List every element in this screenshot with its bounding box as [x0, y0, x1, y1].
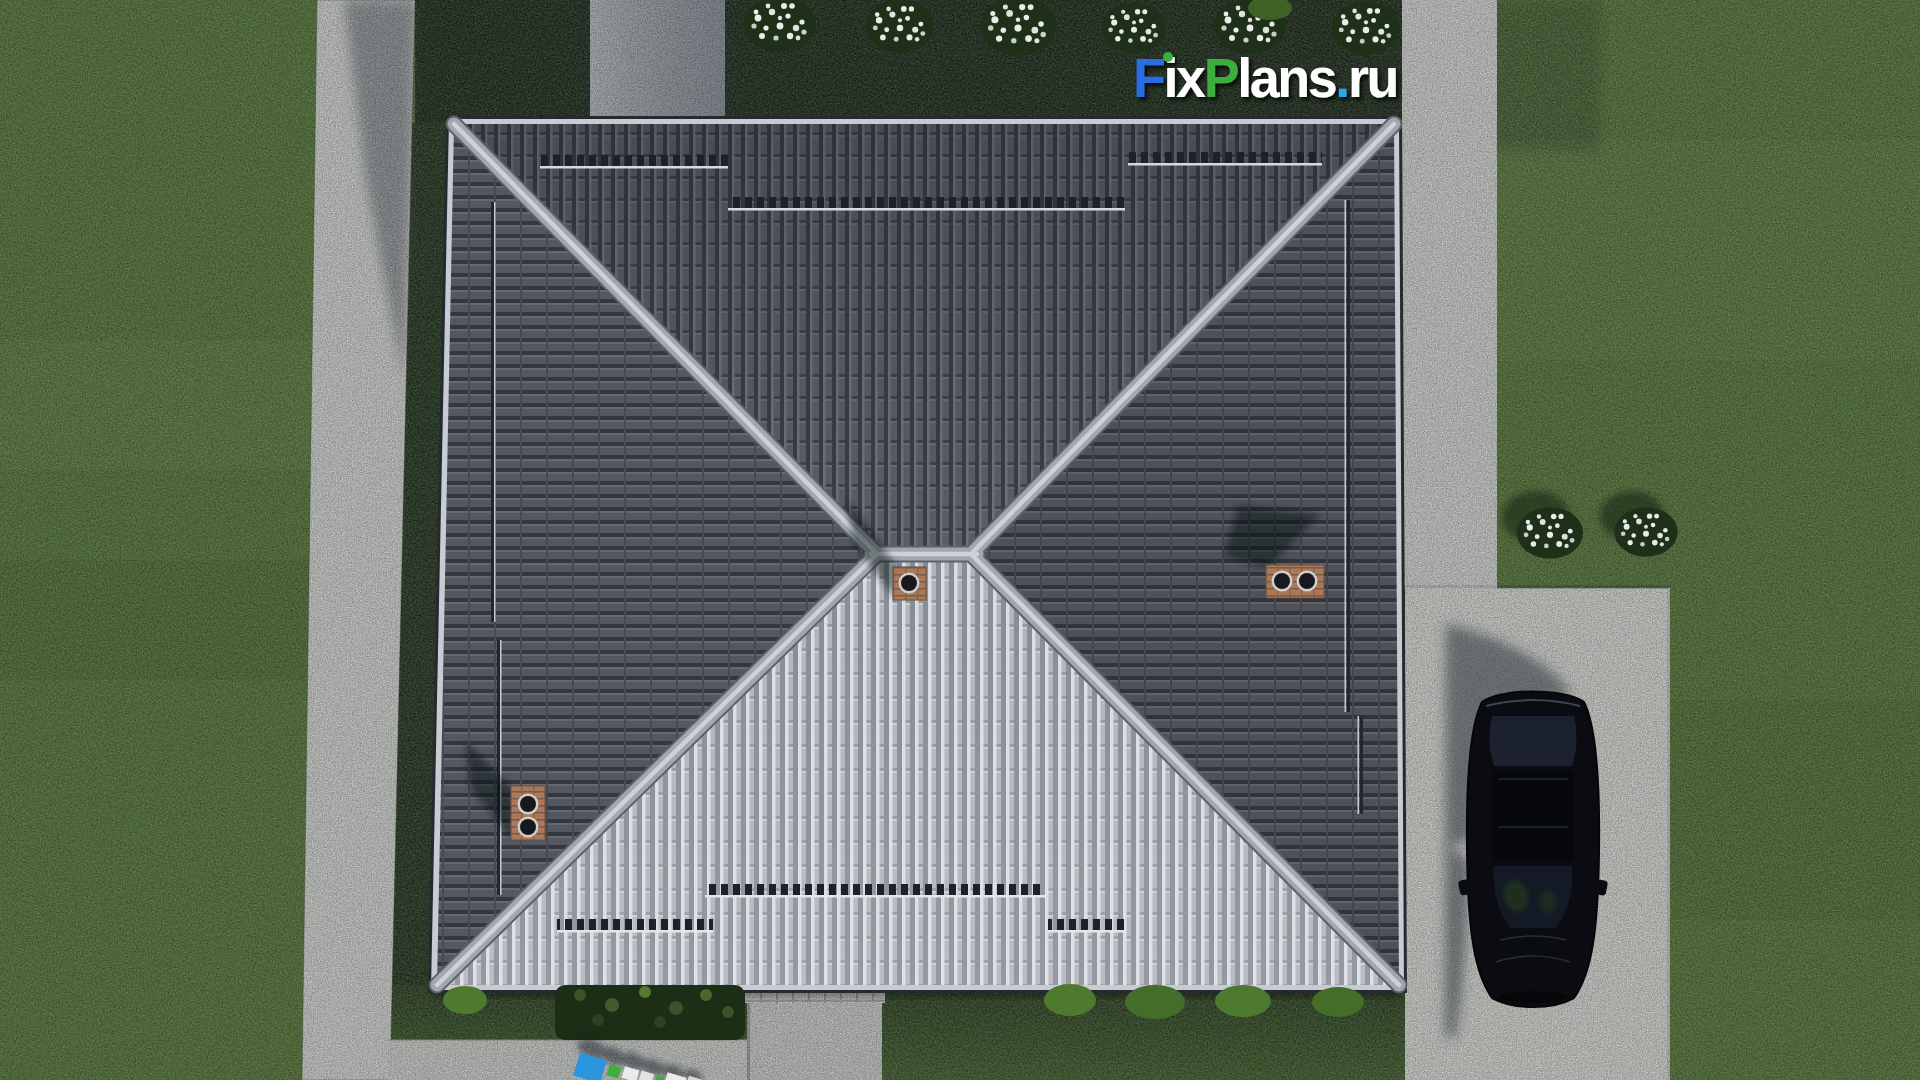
logo-i-dot — [1163, 52, 1173, 62]
chimney-west — [511, 786, 545, 840]
car-sunroof-line — [1498, 826, 1568, 828]
car-rear-glass — [1490, 716, 1577, 766]
brand-watermark: FixPlans.ru — [1133, 46, 1397, 109]
chimney-east — [1266, 565, 1324, 598]
aerial-render: FixPlans.ru — [0, 0, 1920, 1080]
hedge-row — [555, 985, 745, 1040]
logo-part: P — [1204, 46, 1239, 109]
logo-part: lans — [1237, 46, 1336, 109]
car-tree-reflection — [1540, 890, 1556, 914]
car-sunroof-line — [1498, 778, 1568, 780]
chimney-center — [893, 567, 926, 600]
logo-part: F — [1133, 46, 1165, 109]
scene-canvas: FixPlans.ru — [0, 0, 1920, 1080]
logo-part: ru — [1348, 46, 1397, 109]
hip-roof-house — [428, 116, 1407, 993]
logo-part: . — [1335, 46, 1348, 109]
car-front-shade — [1499, 991, 1567, 1003]
car-roof-panel — [1492, 770, 1574, 862]
